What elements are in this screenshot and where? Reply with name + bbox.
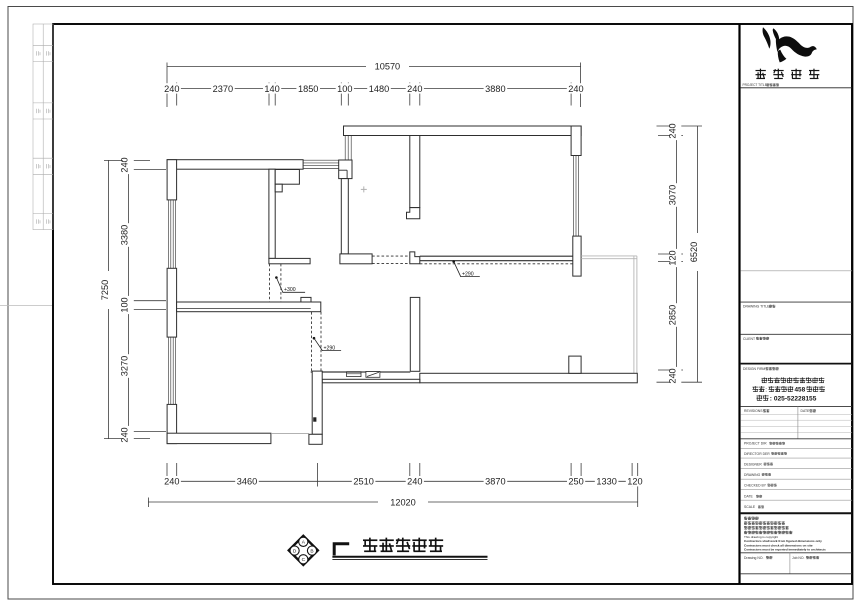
svg-text:REVISIONS: REVISIONS — [744, 409, 763, 413]
svg-text:240: 240 — [164, 84, 179, 94]
svg-text:3880: 3880 — [485, 84, 505, 94]
svg-text:PROJECT TITLE: PROJECT TITLE — [743, 83, 767, 87]
svg-text:12020: 12020 — [390, 497, 416, 507]
svg-text:120: 120 — [667, 250, 677, 265]
svg-text:B: B — [310, 548, 313, 554]
svg-text:100: 100 — [119, 297, 129, 312]
svg-text:100: 100 — [337, 84, 352, 94]
svg-text:Job NO.: Job NO. — [792, 556, 804, 560]
svg-text:1480: 1480 — [369, 84, 389, 94]
svg-text:240: 240 — [164, 477, 179, 487]
svg-text:D: D — [293, 548, 297, 554]
svg-text:240: 240 — [667, 368, 677, 383]
svg-text:Contractors must be reported i: Contractors must be reported immediately… — [744, 548, 826, 552]
svg-text:2850: 2850 — [667, 305, 677, 325]
svg-text:DRAWING: DRAWING — [744, 473, 761, 477]
svg-text:120: 120 — [627, 477, 642, 487]
svg-text:SCALE: SCALE — [744, 505, 756, 509]
svg-text::: : — [765, 387, 767, 394]
svg-text:3070: 3070 — [667, 185, 677, 205]
svg-text:+290: +290 — [324, 346, 336, 352]
svg-text:240: 240 — [568, 84, 583, 94]
svg-text:3460: 3460 — [237, 477, 257, 487]
svg-text:CLIENT: CLIENT — [743, 337, 755, 341]
svg-text:2370: 2370 — [213, 84, 233, 94]
svg-text:250: 250 — [568, 477, 583, 487]
svg-text:3380: 3380 — [119, 225, 129, 245]
svg-text:DATE: DATE — [744, 495, 754, 499]
svg-text:240: 240 — [119, 427, 129, 442]
svg-text:C: C — [302, 557, 306, 563]
svg-text:DESIGN FIRM: DESIGN FIRM — [743, 367, 765, 371]
svg-text:458: 458 — [795, 387, 806, 394]
svg-text:DATE: DATE — [801, 409, 811, 413]
svg-text:140: 140 — [264, 84, 279, 94]
svg-text:3270: 3270 — [119, 356, 129, 376]
svg-text:7250: 7250 — [100, 280, 110, 300]
svg-text:1850: 1850 — [298, 84, 318, 94]
svg-text:10570: 10570 — [375, 62, 401, 72]
svg-text:+300: +300 — [284, 287, 296, 293]
svg-text:240: 240 — [407, 477, 422, 487]
svg-text:240: 240 — [407, 84, 422, 94]
svg-text:3870: 3870 — [485, 477, 505, 487]
svg-text:DESIGNER: DESIGNER — [744, 462, 762, 466]
svg-text:Drawing NO.: Drawing NO. — [744, 556, 763, 560]
svg-text:6520: 6520 — [689, 242, 699, 262]
svg-text:2510: 2510 — [353, 477, 373, 487]
svg-text:DRAWING TITLE: DRAWING TITLE — [743, 305, 770, 309]
svg-text:+290: +290 — [462, 272, 474, 278]
svg-text:: 025-52228155: : 025-52228155 — [770, 395, 817, 402]
svg-text:CHECKED BY: CHECKED BY — [744, 483, 767, 487]
svg-text:1330: 1330 — [596, 477, 616, 487]
svg-text:240: 240 — [667, 123, 677, 138]
svg-text:DIRECTOR DER: DIRECTOR DER — [744, 452, 770, 456]
svg-text:240: 240 — [119, 157, 129, 172]
svg-text:PROJECT DIR: PROJECT DIR — [744, 442, 767, 446]
